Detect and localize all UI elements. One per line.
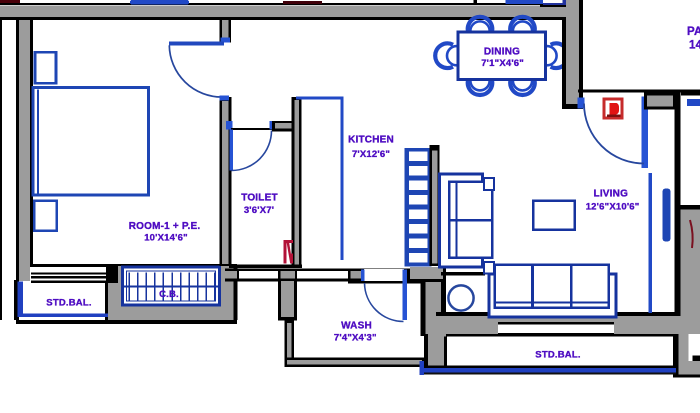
svg-text:10'X14'6": 10'X14'6" — [144, 233, 188, 244]
svg-text:12'6"X10'6": 12'6"X10'6" — [586, 202, 640, 213]
svg-text:STD.BAL.: STD.BAL. — [535, 350, 580, 361]
svg-text:STD.BAL.: STD.BAL. — [46, 298, 91, 309]
svg-text:7'4"X4'3": 7'4"X4'3" — [334, 333, 377, 344]
svg-text:DINING: DINING — [484, 47, 520, 58]
svg-text:KITCHEN: KITCHEN — [348, 135, 394, 146]
svg-text:C.B.: C.B. — [159, 289, 179, 300]
svg-text:TOILET: TOILET — [241, 193, 278, 204]
svg-text:7'X12'6": 7'X12'6" — [352, 149, 390, 160]
svg-text:3'6'X7': 3'6'X7' — [244, 205, 274, 216]
svg-text:WASH: WASH — [341, 321, 372, 332]
svg-text:ROOM-1 + P.E.: ROOM-1 + P.E. — [129, 221, 201, 232]
svg-text:14: 14 — [689, 40, 700, 52]
svg-text:LIVING: LIVING — [594, 189, 629, 200]
svg-text:7'1"X4'6": 7'1"X4'6" — [481, 58, 524, 69]
svg-text:PA: PA — [687, 26, 700, 38]
